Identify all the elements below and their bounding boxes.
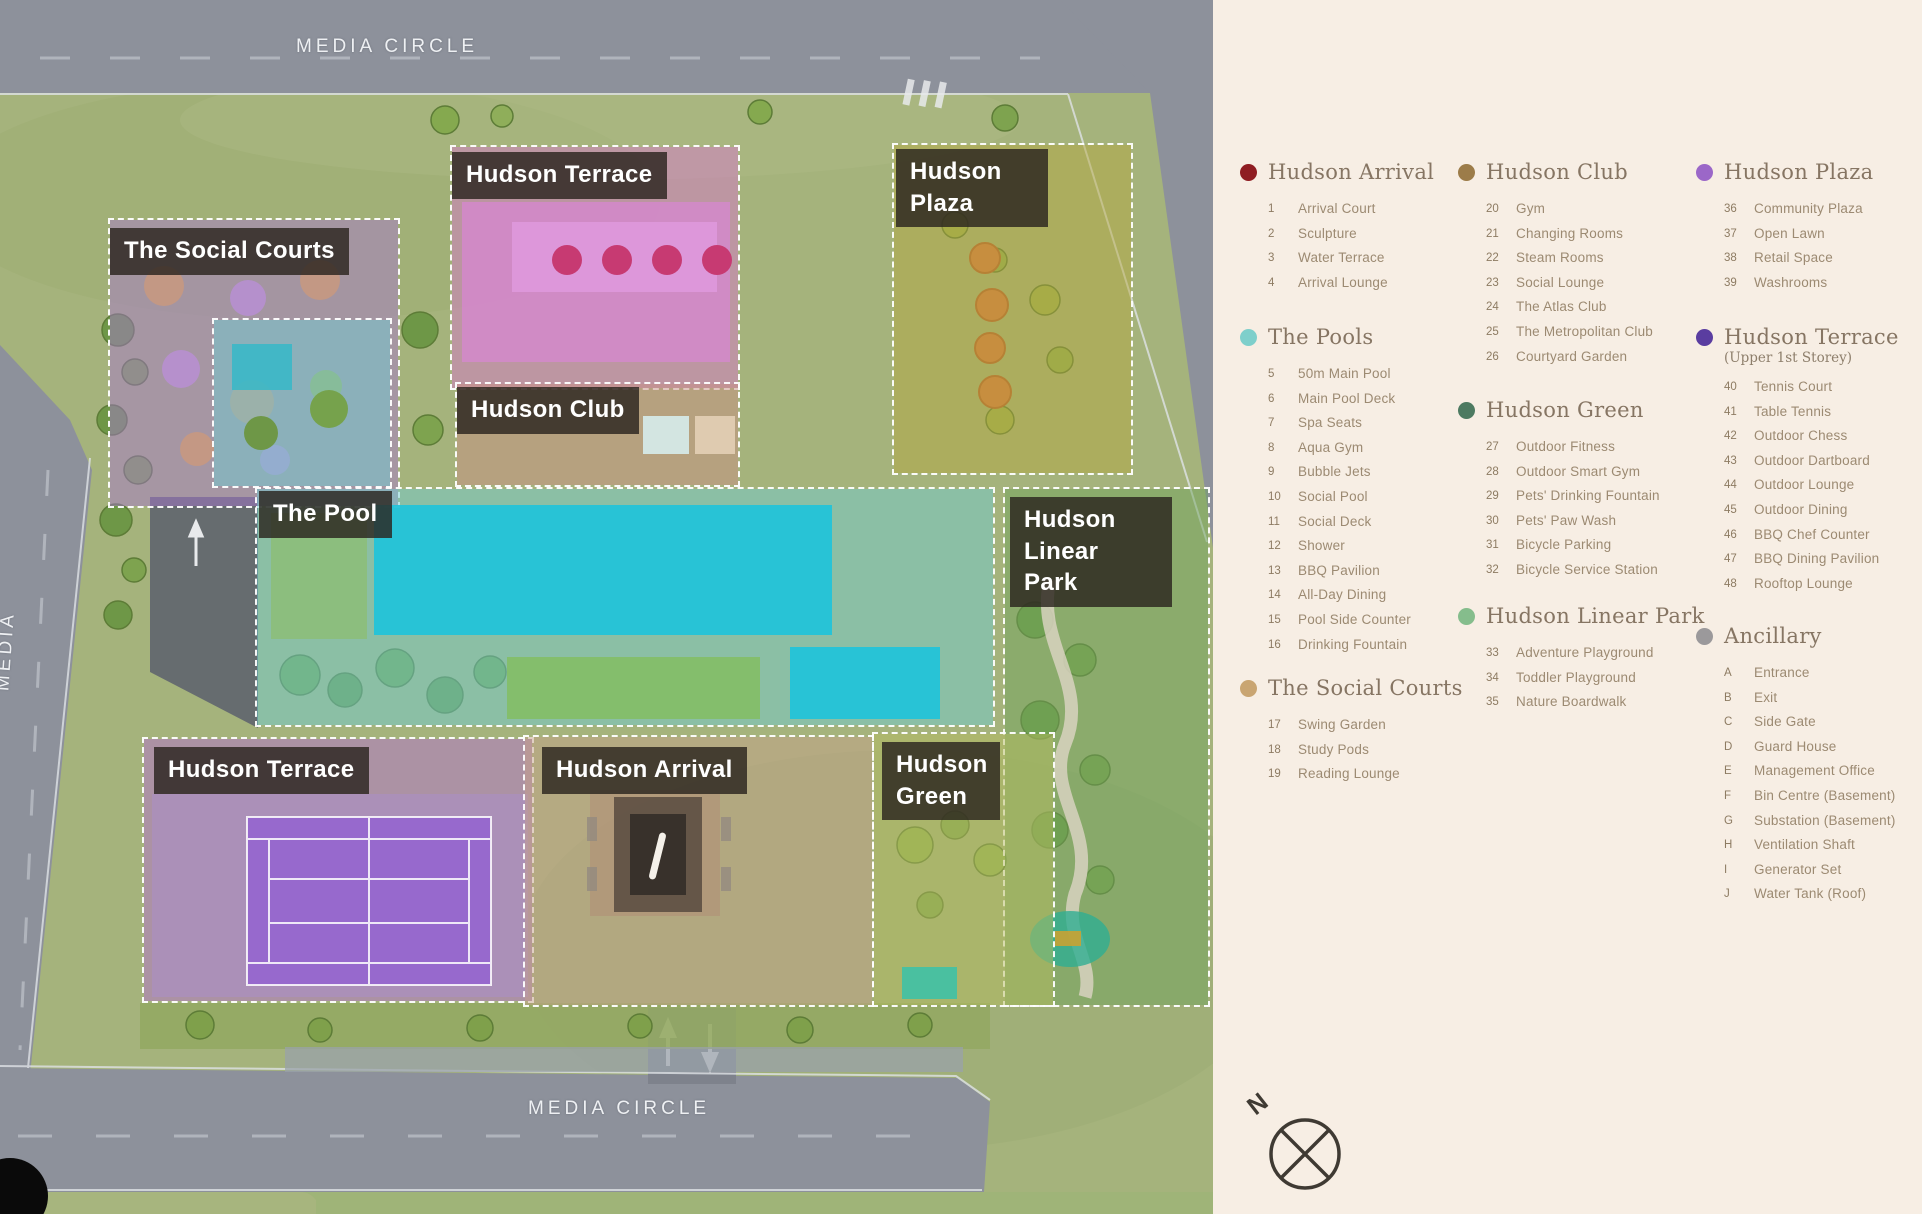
legend-item-number: 30 (1486, 509, 1516, 534)
legend-item: 40Tennis Court (1724, 375, 1911, 400)
zone-hudson-arrival: Hudson Arrival (523, 735, 874, 1007)
green-pond (902, 967, 957, 999)
legend-item: 2Sculpture (1268, 222, 1455, 247)
legend-items-hudson-green: 27Outdoor Fitness28Outdoor Smart Gym29Pe… (1458, 435, 1673, 583)
legend-item-label: Side Gate (1754, 710, 1816, 735)
legend-item-label: Adventure Playground (1516, 641, 1654, 666)
legend-item-number: 15 (1268, 608, 1298, 633)
zone-hudson-plaza: Hudson Plaza (892, 143, 1133, 475)
main-pool-water (374, 505, 832, 635)
legend-item-label: The Metropolitan Club (1516, 320, 1653, 345)
legend-item-label: Steam Rooms (1516, 246, 1604, 271)
south-walkway (285, 1047, 963, 1072)
legend-item-number: E (1724, 759, 1754, 784)
legend-item-number: 26 (1486, 345, 1516, 370)
legend-item-label: Gym (1516, 197, 1545, 222)
legend-item-label: Social Pool (1298, 485, 1368, 510)
legend-item-label: Study Pods (1298, 738, 1369, 763)
tree (310, 390, 348, 428)
legend-item: 1Arrival Court (1268, 197, 1455, 222)
legend-items-the-pools: 550m Main Pool6Main Pool Deck7Spa Seats8… (1240, 362, 1455, 657)
legend-item-label: Outdoor Smart Gym (1516, 460, 1640, 485)
legend-item-number: 32 (1486, 558, 1516, 583)
legend-item-label: 50m Main Pool (1298, 362, 1391, 387)
legend-item-label: BBQ Chef Counter (1754, 523, 1870, 548)
legend-item-number: 8 (1268, 436, 1298, 461)
legend-items-hudson-plaza: 36Community Plaza37Open Lawn38Retail Spa… (1696, 197, 1911, 295)
legend-item-number: F (1724, 784, 1754, 809)
legend-item-label: Outdoor Dartboard (1754, 449, 1870, 474)
zone-label-hudson-linear-park: Hudson Linear Park (1010, 497, 1172, 607)
legend-item: 22Steam Rooms (1486, 246, 1673, 271)
legend-item: 48Rooftop Lounge (1724, 572, 1911, 597)
zone-label-hudson-terrace-lower: Hudson Terrace (154, 747, 369, 794)
legend-item: 45Outdoor Dining (1724, 498, 1911, 523)
legend-item-label: Community Plaza (1754, 197, 1863, 222)
legend-item-number: 27 (1486, 435, 1516, 460)
legend-dot-the-social-courts (1240, 680, 1257, 697)
legend-item: 18Study Pods (1268, 738, 1455, 763)
legend-item-number: C (1724, 710, 1754, 735)
garden-canopy (230, 280, 266, 316)
zone-label-hudson-club: Hudson Club (457, 387, 639, 434)
legend-item-number: 29 (1486, 484, 1516, 509)
legend-item-label: Table Tennis (1754, 400, 1831, 425)
legend-item-number: 48 (1724, 572, 1754, 597)
legend-item: 39Washrooms (1724, 271, 1911, 296)
legend-item: 26Courtyard Garden (1486, 345, 1673, 370)
legend-item-label: Bicycle Parking (1516, 533, 1611, 558)
legend-item: 34Toddler Playground (1486, 666, 1673, 691)
legend-item: 21Changing Rooms (1486, 222, 1673, 247)
legend-item: 35Nature Boardwalk (1486, 690, 1673, 715)
legend-dot-hudson-plaza (1696, 164, 1713, 181)
legend-dot-hudson-terrace (1696, 329, 1713, 346)
legend-item-label: Pets' Drinking Fountain (1516, 484, 1660, 509)
legend-item-number: J (1724, 882, 1754, 907)
legend-item: 36Community Plaza (1724, 197, 1911, 222)
legend-title-hudson-plaza: Hudson Plaza (1724, 160, 1873, 184)
legend-section-hudson-arrival: Hudson Arrival 1Arrival Court2Sculpture3… (1240, 160, 1455, 295)
legend-item-label: Nature Boardwalk (1516, 690, 1627, 715)
legend-item-number: 41 (1724, 400, 1754, 425)
legend-item-label: Changing Rooms (1516, 222, 1623, 247)
legend-item-label: Washrooms (1754, 271, 1827, 296)
legend-title-the-social-courts: The Social Courts (1268, 676, 1463, 700)
legend-item-number: 40 (1724, 375, 1754, 400)
roof-feature (702, 245, 732, 275)
legend-item-label: Outdoor Lounge (1754, 473, 1854, 498)
legend-item-number: 31 (1486, 533, 1516, 558)
legend-item: 15Pool Side Counter (1268, 608, 1455, 633)
legend-item-number: D (1724, 735, 1754, 760)
legend-item: BExit (1724, 686, 1911, 711)
legend-item-number: G (1724, 809, 1754, 834)
bench (587, 817, 597, 841)
legend-item-number: 9 (1268, 460, 1298, 485)
legend-item: GSubstation (Basement) (1724, 809, 1911, 834)
legend-section-hudson-terrace: Hudson Terrace (Upper 1st Storey) 40Tenn… (1696, 325, 1911, 596)
zone-label-hudson-terrace-upper: Hudson Terrace (452, 152, 667, 199)
legend-item-number: 17 (1268, 713, 1298, 738)
social-pool-water (790, 647, 940, 719)
legend-item: 550m Main Pool (1268, 362, 1455, 387)
legend-item: DGuard House (1724, 735, 1911, 760)
legend-item-number: 45 (1724, 498, 1754, 523)
legend-title-hudson-linear-park: Hudson Linear Park (1486, 604, 1705, 628)
zone-label-hudson-arrival: Hudson Arrival (542, 747, 747, 794)
pool-lawn (507, 657, 760, 719)
legend-item-label: Reading Lounge (1298, 762, 1400, 787)
legend-item-number: 14 (1268, 583, 1298, 608)
legend-item-label: Guard House (1754, 735, 1837, 760)
legend-item-label: Water Tank (Roof) (1754, 882, 1866, 907)
legend-item: 46BBQ Chef Counter (1724, 523, 1911, 548)
legend-item-number: 19 (1268, 762, 1298, 787)
legend-item-number: 1 (1268, 197, 1298, 222)
legend-item-label: Spa Seats (1298, 411, 1362, 436)
legend-item-number: 3 (1268, 246, 1298, 271)
legend-item-number: 47 (1724, 547, 1754, 572)
legend-item: 24The Atlas Club (1486, 295, 1673, 320)
legend-items-the-social-courts: 17Swing Garden18Study Pods19Reading Loun… (1240, 713, 1455, 787)
legend-item: EManagement Office (1724, 759, 1911, 784)
legend-section-hudson-green: Hudson Green 27Outdoor Fitness28Outdoor … (1458, 398, 1673, 583)
legend-items-hudson-arrival: 1Arrival Court2Sculpture3Water Terrace4A… (1240, 197, 1455, 295)
legend-item-label: Sculpture (1298, 222, 1357, 247)
zone-label-the-social-courts: The Social Courts (110, 228, 349, 275)
legend-title-hudson-terrace: Hudson Terrace (1724, 325, 1899, 349)
zone-the-pool: The Pool (255, 487, 995, 727)
legend-item: 37Open Lawn (1724, 222, 1911, 247)
legend-item-label: Social Lounge (1516, 271, 1604, 296)
legend-item: 12Shower (1268, 534, 1455, 559)
legend-item: 29Pets' Drinking Fountain (1486, 484, 1673, 509)
legend-item-label: Drinking Fountain (1298, 633, 1407, 658)
legend-item: 38Retail Space (1724, 246, 1911, 271)
zone-hudson-club: Hudson Club (455, 382, 740, 487)
legend-section-hudson-linear-park: Hudson Linear Park 33Adventure Playgroun… (1458, 604, 1673, 715)
legend-item-label: Rooftop Lounge (1754, 572, 1853, 597)
zone-the-pool-upper (212, 318, 392, 488)
legend-item: 32Bicycle Service Station (1486, 558, 1673, 583)
legend-item-number: 25 (1486, 320, 1516, 345)
legend-item: 11Social Deck (1268, 510, 1455, 535)
legend-item-label: Pets' Paw Wash (1516, 509, 1616, 534)
legend-item-number: 2 (1268, 222, 1298, 247)
legend-item-number: 35 (1486, 690, 1516, 715)
hedge-band (140, 1003, 990, 1049)
legend-item-label: Outdoor Chess (1754, 424, 1847, 449)
legend-item-label: Courtyard Garden (1516, 345, 1627, 370)
legend-item-number: 13 (1268, 559, 1298, 584)
legend-item-number: 4 (1268, 271, 1298, 296)
legend-item-number: 42 (1724, 424, 1754, 449)
legend-title-hudson-club: Hudson Club (1486, 160, 1628, 184)
legend-item-number: A (1724, 661, 1754, 686)
legend-item: 3Water Terrace (1268, 246, 1455, 271)
legend-item-number: 46 (1724, 523, 1754, 548)
legend-item: 4Arrival Lounge (1268, 271, 1455, 296)
legend-item-label: Retail Space (1754, 246, 1833, 271)
legend-item-label: Outdoor Fitness (1516, 435, 1615, 460)
legend-item: 42Outdoor Chess (1724, 424, 1911, 449)
legend-item: 47BBQ Dining Pavilion (1724, 547, 1911, 572)
legend-item-number: B (1724, 686, 1754, 711)
legend-item-number: I (1724, 858, 1754, 883)
legend-item-number: 7 (1268, 411, 1298, 436)
legend-item-label: Outdoor Dining (1754, 498, 1848, 523)
legend-item-label: Tennis Court (1754, 375, 1832, 400)
bench (721, 867, 731, 891)
legend-item-label: Bicycle Service Station (1516, 558, 1658, 583)
legend-item-number: 22 (1486, 246, 1516, 271)
legend-title-hudson-green: Hudson Green (1486, 398, 1644, 422)
legend-dot-hudson-linear-park (1458, 608, 1475, 625)
legend-item: 6Main Pool Deck (1268, 387, 1455, 412)
legend-item-label: Bubble Jets (1298, 460, 1371, 485)
legend-item-label: BBQ Pavilion (1298, 559, 1380, 584)
legend-subtitle-hudson-terrace: (Upper 1st Storey) (1724, 350, 1911, 366)
legend-item-label: Substation (Basement) (1754, 809, 1896, 834)
legend-item-label: Shower (1298, 534, 1345, 559)
legend-item: IGenerator Set (1724, 858, 1911, 883)
legend-item: 7Spa Seats (1268, 411, 1455, 436)
legend-item: 14All-Day Dining (1268, 583, 1455, 608)
legend-item: 10Social Pool (1268, 485, 1455, 510)
legend-item-label: Entrance (1754, 661, 1810, 686)
legend-item-number: 34 (1486, 666, 1516, 691)
legend-item-number: 6 (1268, 387, 1298, 412)
legend-item: 8Aqua Gym (1268, 436, 1455, 461)
legend-item-label: The Atlas Club (1516, 295, 1607, 320)
legend-item: 43Outdoor Dartboard (1724, 449, 1911, 474)
legend-dot-ancillary (1696, 628, 1713, 645)
legend-dot-hudson-club (1458, 164, 1475, 181)
legend-item: 25The Metropolitan Club (1486, 320, 1673, 345)
legend-title-hudson-arrival: Hudson Arrival (1268, 160, 1434, 184)
legend-item: 17Swing Garden (1268, 713, 1455, 738)
legend-panel: Hudson Arrival 1Arrival Court2Sculpture3… (1213, 0, 1922, 1214)
legend-item-label: Pool Side Counter (1298, 608, 1411, 633)
legend-item-label: Arrival Lounge (1298, 271, 1388, 296)
legend-item-number: H (1724, 833, 1754, 858)
legend-item-number: 5 (1268, 362, 1298, 387)
club-deck (695, 416, 735, 454)
legend-item-number: 44 (1724, 473, 1754, 498)
legend-item-number: 18 (1268, 738, 1298, 763)
legend-item: 30Pets' Paw Wash (1486, 509, 1673, 534)
legend-item-number: 20 (1486, 197, 1516, 222)
bench (587, 867, 597, 891)
zone-hudson-terrace-lower: Hudson Terrace (142, 737, 534, 1003)
legend-item-number: 24 (1486, 295, 1516, 320)
legend-item: 28Outdoor Smart Gym (1486, 460, 1673, 485)
legend-item: 41Table Tennis (1724, 400, 1911, 425)
roof-feature (552, 245, 582, 275)
legend-item-label: Open Lawn (1754, 222, 1825, 247)
legend-item-label: Main Pool Deck (1298, 387, 1395, 412)
legend-item-number: 37 (1724, 222, 1754, 247)
legend-items-hudson-club: 20Gym21Changing Rooms22Steam Rooms23Soci… (1458, 197, 1673, 369)
legend-item-number: 36 (1724, 197, 1754, 222)
legend-dot-hudson-green (1458, 402, 1475, 419)
zone-hudson-terrace-upper: Hudson Terrace (450, 145, 740, 390)
roof-feature (602, 245, 632, 275)
legend-section-hudson-plaza: Hudson Plaza 36Community Plaza37Open Law… (1696, 160, 1911, 295)
legend-item-label: Bin Centre (Basement) (1754, 784, 1896, 809)
legend-title-the-pools: The Pools (1268, 325, 1373, 349)
legend-item-label: Water Terrace (1298, 246, 1385, 271)
legend-item-label: Ventilation Shaft (1754, 833, 1855, 858)
zone-label-hudson-plaza: Hudson Plaza (896, 149, 1048, 227)
zone-hudson-green: Hudson Green (872, 732, 1055, 1007)
legend-item: HVentilation Shaft (1724, 833, 1911, 858)
zone-label-hudson-green: Hudson Green (882, 742, 1000, 820)
site-map: MEDIA CIRCLE MEDIA CIRCLE MEDIA The Soci… (0, 0, 1213, 1214)
legend-item-number: 23 (1486, 271, 1516, 296)
legend-item-label: Swing Garden (1298, 713, 1386, 738)
garden-canopy (162, 350, 200, 388)
legend-item: 31Bicycle Parking (1486, 533, 1673, 558)
legend-item-number: 43 (1724, 449, 1754, 474)
tree (244, 416, 278, 450)
legend-item: 20Gym (1486, 197, 1673, 222)
legend-item-label: Social Deck (1298, 510, 1371, 535)
legend-items-hudson-linear-park: 33Adventure Playground34Toddler Playgrou… (1458, 641, 1673, 715)
legend-item-label: Arrival Court (1298, 197, 1376, 222)
zone-label-the-pool: The Pool (259, 491, 392, 538)
legend-item-label: All-Day Dining (1298, 583, 1386, 608)
legend-item-number: 33 (1486, 641, 1516, 666)
legend-item-number: 16 (1268, 633, 1298, 658)
legend-section-ancillary: Ancillary AEntranceBExitCSide GateDGuard… (1696, 624, 1911, 907)
site-plan-screenshot: MEDIA CIRCLE MEDIA CIRCLE MEDIA The Soci… (0, 0, 1922, 1214)
roof-feature (652, 245, 682, 275)
legend-item-number: 10 (1268, 485, 1298, 510)
legend-items-ancillary: AEntranceBExitCSide GateDGuard HouseEMan… (1696, 661, 1911, 907)
legend-item-label: Management Office (1754, 759, 1875, 784)
legend-item: JWater Tank (Roof) (1724, 882, 1911, 907)
legend-section-the-social-courts: The Social Courts 17Swing Garden18Study … (1240, 676, 1455, 787)
garden-canopy (180, 432, 214, 466)
legend-item: 13BBQ Pavilion (1268, 559, 1455, 584)
legend-item-label: BBQ Dining Pavilion (1754, 547, 1879, 572)
legend-dot-hudson-arrival (1240, 164, 1257, 181)
legend-item: AEntrance (1724, 661, 1911, 686)
legend-item: 33Adventure Playground (1486, 641, 1673, 666)
legend-item-number: 21 (1486, 222, 1516, 247)
legend-items-hudson-terrace: 40Tennis Court41Table Tennis42Outdoor Ch… (1696, 375, 1911, 596)
legend-item-label: Aqua Gym (1298, 436, 1363, 461)
legend-item-label: Generator Set (1754, 858, 1841, 883)
legend-item: 23Social Lounge (1486, 271, 1673, 296)
legend-item-label: Exit (1754, 686, 1777, 711)
legend-item: 16Drinking Fountain (1268, 633, 1455, 658)
legend-section-the-pools: The Pools 550m Main Pool6Main Pool Deck7… (1240, 325, 1455, 657)
road-label-media-circle-top: MEDIA CIRCLE (296, 36, 478, 58)
legend-item-number: 39 (1724, 271, 1754, 296)
legend-item-number: 12 (1268, 534, 1298, 559)
legend-section-hudson-club: Hudson Club 20Gym21Changing Rooms22Steam… (1458, 160, 1673, 369)
legend-item: 44Outdoor Lounge (1724, 473, 1911, 498)
legend-item-number: 11 (1268, 510, 1298, 535)
legend-dot-the-pools (1240, 329, 1257, 346)
legend-title-ancillary: Ancillary (1724, 624, 1822, 648)
legend-item: FBin Centre (Basement) (1724, 784, 1911, 809)
legend-item-number: 38 (1724, 246, 1754, 271)
bench (721, 817, 731, 841)
water-feature (232, 344, 292, 390)
legend-item: 9Bubble Jets (1268, 460, 1455, 485)
legend-item: 19Reading Lounge (1268, 762, 1455, 787)
legend-item-label: Toddler Playground (1516, 666, 1636, 691)
road-label-media-circle-bottom: MEDIA CIRCLE (528, 1098, 710, 1120)
legend-item: 27Outdoor Fitness (1486, 435, 1673, 460)
legend-item-number: 28 (1486, 460, 1516, 485)
club-pool (643, 416, 689, 454)
legend-item: CSide Gate (1724, 710, 1911, 735)
